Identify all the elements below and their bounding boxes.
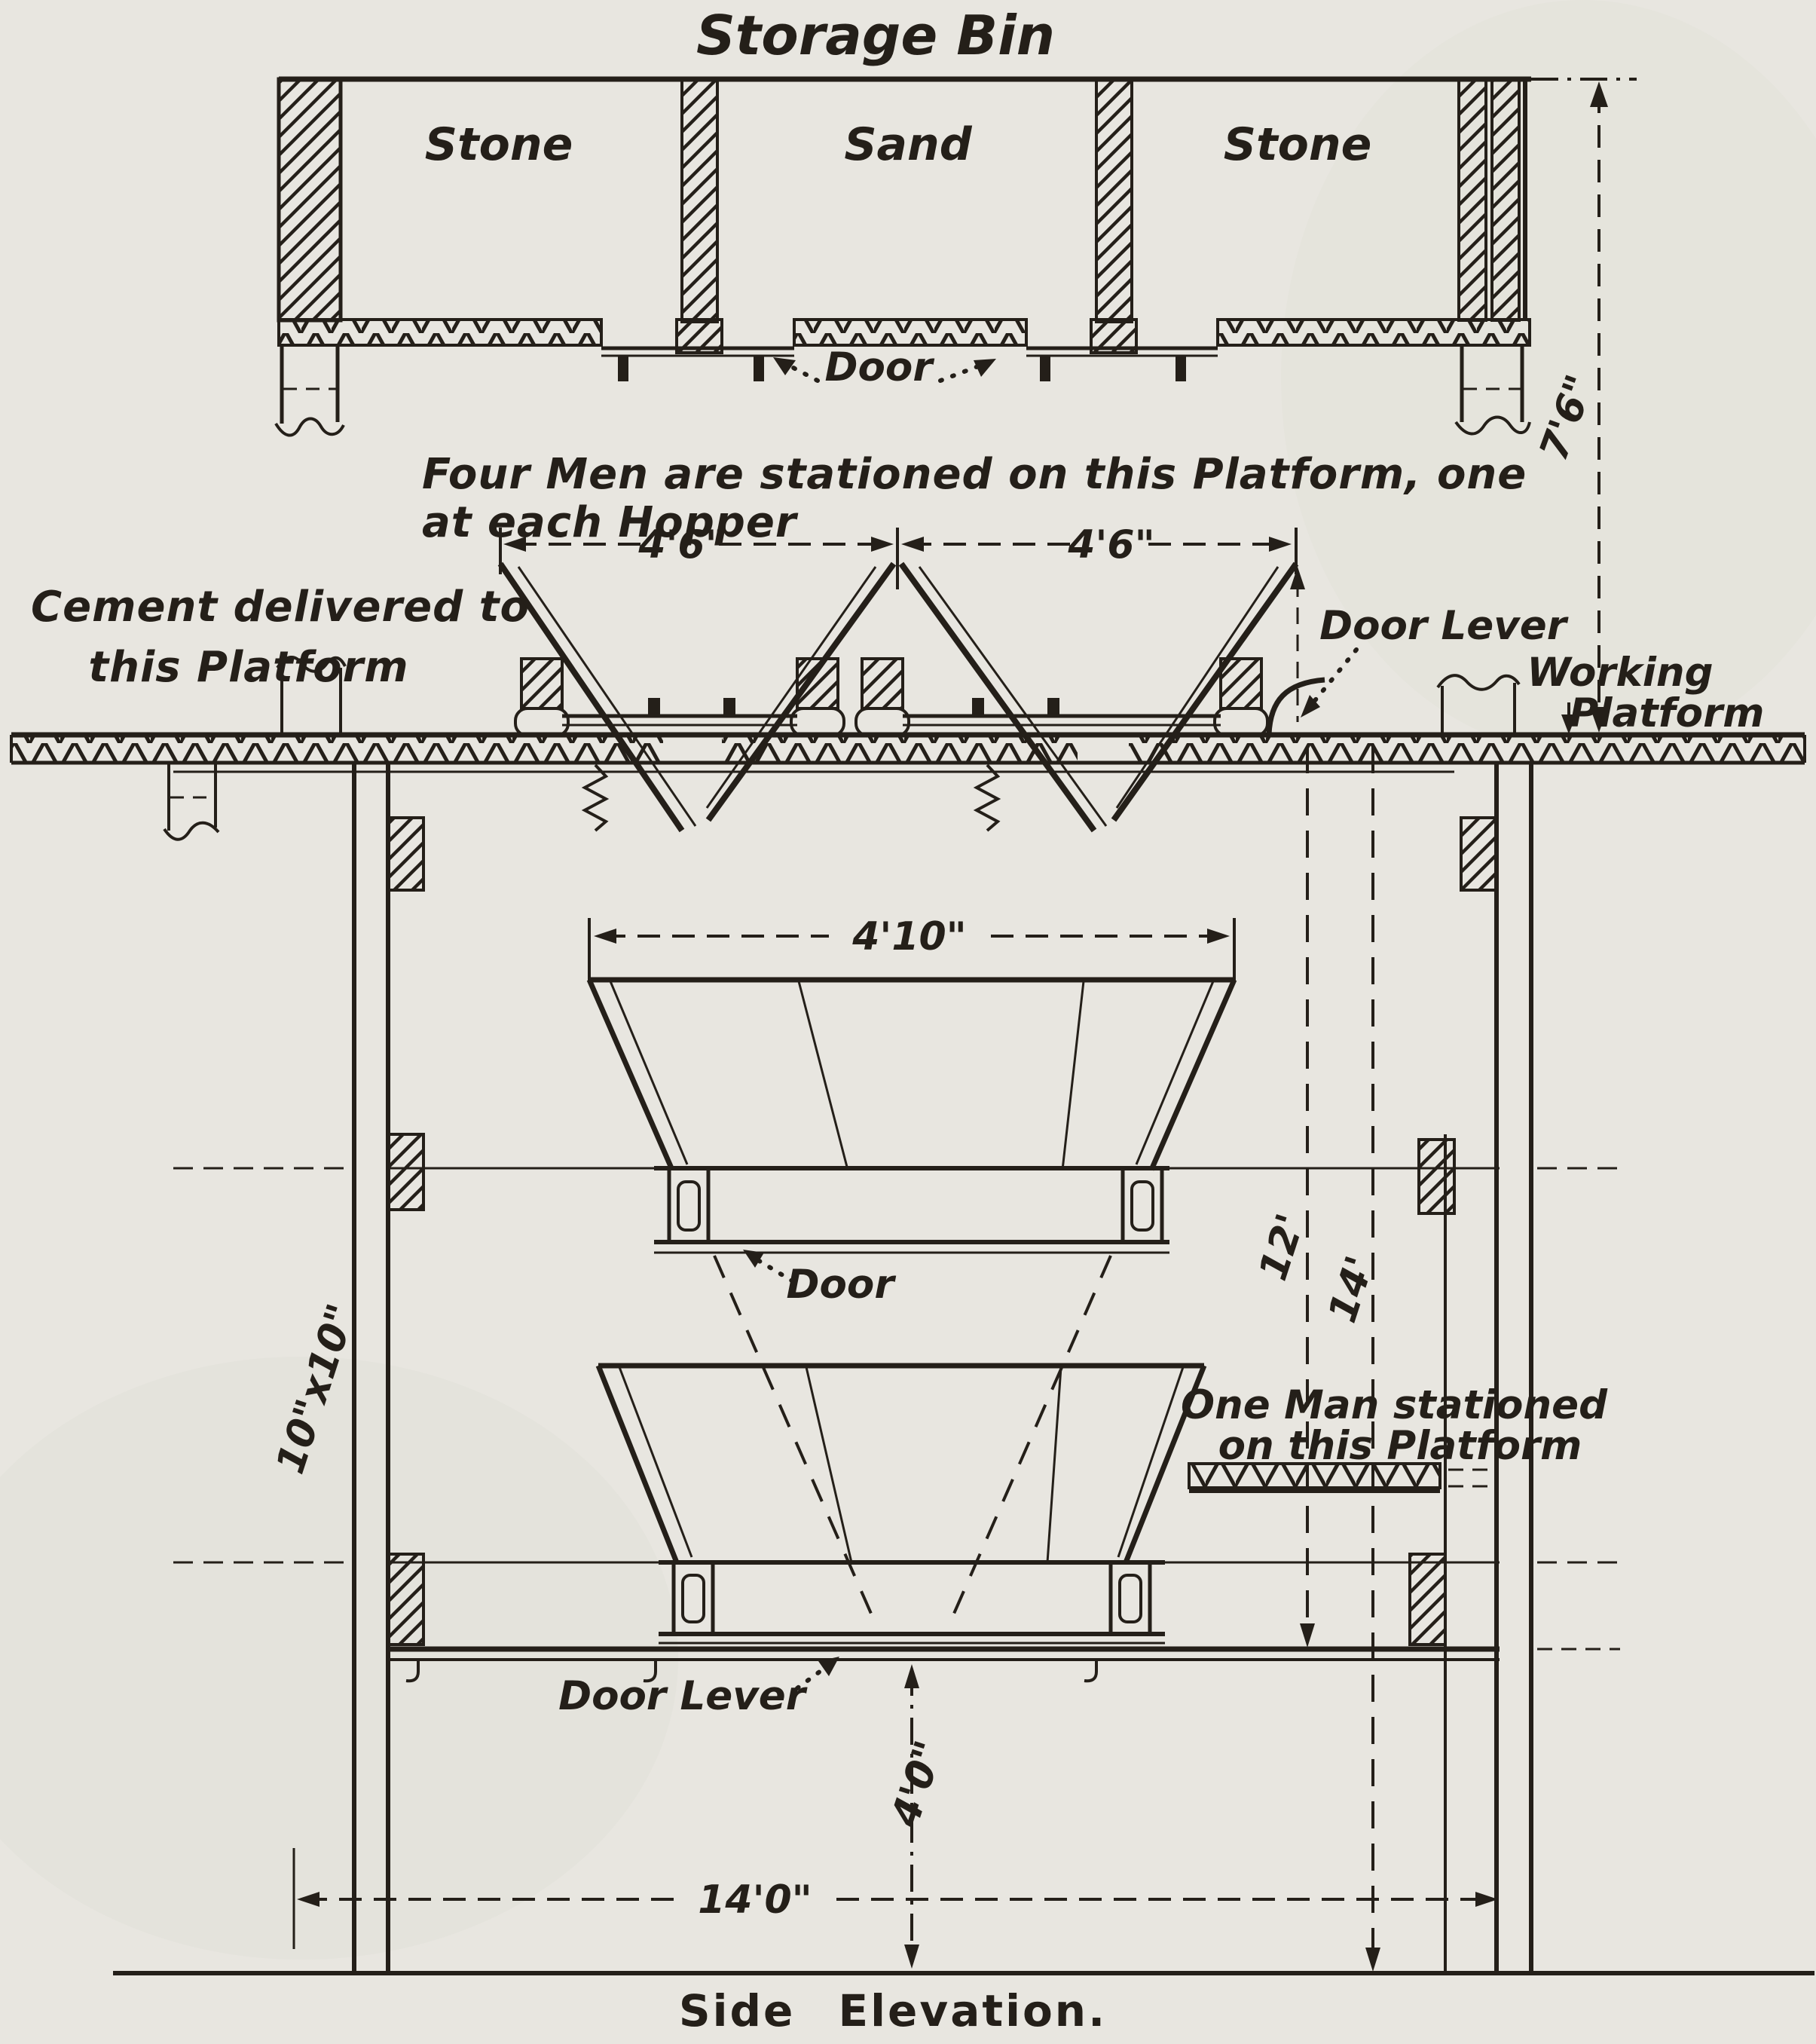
drawing-page: Storage Bin Stone Sand Stone Door 7'6" F… (0, 0, 1816, 2044)
dim-hopper-spacing-left: 4'6" (637, 522, 725, 568)
door-lever-upper-label: Door Lever (1319, 603, 1569, 649)
one-man-label-line1: One Man stationed (1181, 1382, 1608, 1428)
one-man-label-line2: on this Platform (1218, 1423, 1582, 1469)
dim-hopper-spacing-right: 4'6" (1067, 522, 1154, 568)
bin-label-stone-right: Stone (1224, 118, 1372, 171)
hopper-door-label: Door (787, 1262, 897, 1308)
drawing-caption: Side Elevation. (679, 1985, 1107, 2036)
storage-bin-side-elevation-drawing: Storage Bin Stone Sand Stone Door 7'6" F… (0, 0, 1816, 2044)
bin-door-label: Door (825, 344, 935, 390)
bin-label-sand: Sand (844, 118, 972, 171)
four-men-note-line2: at each Hopper (422, 498, 799, 547)
four-men-note-line1: Four Men are stationed on this Platform,… (422, 450, 1527, 499)
working-platform-label-line2: Platform (1570, 690, 1765, 736)
drawing-title: Storage Bin (696, 4, 1055, 67)
door-lever-lower-label: Door Lever (558, 1673, 808, 1719)
dim-frame-width: 14'0" (698, 1877, 812, 1923)
bin-label-stone-left: Stone (425, 118, 573, 171)
working-platform-label-line1: Working (1527, 650, 1713, 696)
cement-note-line1: Cement delivered to (31, 583, 530, 632)
cement-note-line2: this Platform (88, 643, 408, 692)
dim-hopper-width: 4'10" (851, 914, 967, 959)
